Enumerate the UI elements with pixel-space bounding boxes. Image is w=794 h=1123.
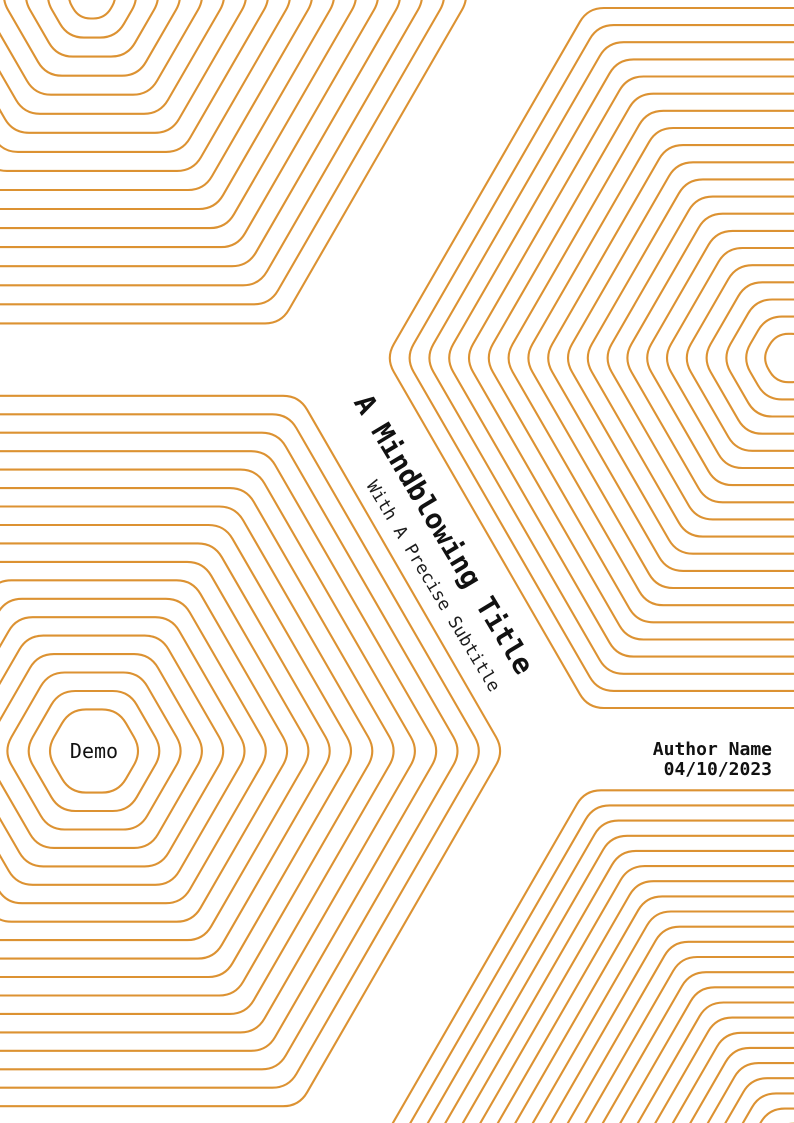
hexagon-ring: [69, 0, 115, 19]
hexagon-ring: [627, 214, 794, 503]
hexagon-ring: [382, 805, 794, 1123]
hexagon-ring: [449, 59, 794, 656]
hexagon-ring: [707, 282, 794, 433]
hexagon-pattern-background: [0, 0, 794, 1123]
hexagon-ring: [0, 0, 268, 152]
hexagon-ring: [0, 617, 245, 885]
document-date: 04/10/2023: [653, 760, 772, 780]
hexagon-ring: [0, 470, 415, 1033]
hexagon-ring: [746, 317, 794, 400]
hexagon-ring: [417, 836, 794, 1123]
hexagon-center-label: Demo: [70, 739, 118, 763]
hexagon-ring: [0, 562, 308, 940]
hexagon-pattern-bottom-right: [364, 790, 794, 1123]
hexagon-pattern-top-left: [0, 0, 466, 323]
hexagon-ring: [0, 0, 422, 285]
hexagon-ring: [765, 334, 794, 382]
hexagon-ring: [509, 111, 794, 605]
hexagon-ring: [568, 162, 794, 553]
hexagon-ring: [0, 599, 266, 903]
hexagon-ring: [489, 94, 794, 623]
document-page: A Mindblowing Title With A Precise Subti…: [0, 0, 794, 1123]
hexagon-ring: [732, 1109, 794, 1123]
hexagon-ring: [0, 525, 351, 977]
hexagon-ring: [647, 231, 794, 485]
hexagon-ring: [0, 0, 334, 209]
hexagon-ring: [26, 0, 158, 57]
hexagon-ring: [548, 145, 794, 571]
author-block: Author Name 04/10/2023: [653, 740, 772, 779]
author-name: Author Name: [653, 740, 772, 760]
hexagon-ring: [592, 987, 794, 1123]
hexagon-ring: [662, 1048, 794, 1123]
hexagon-ring: [0, 451, 436, 1051]
hexagon-ring: [588, 179, 794, 536]
